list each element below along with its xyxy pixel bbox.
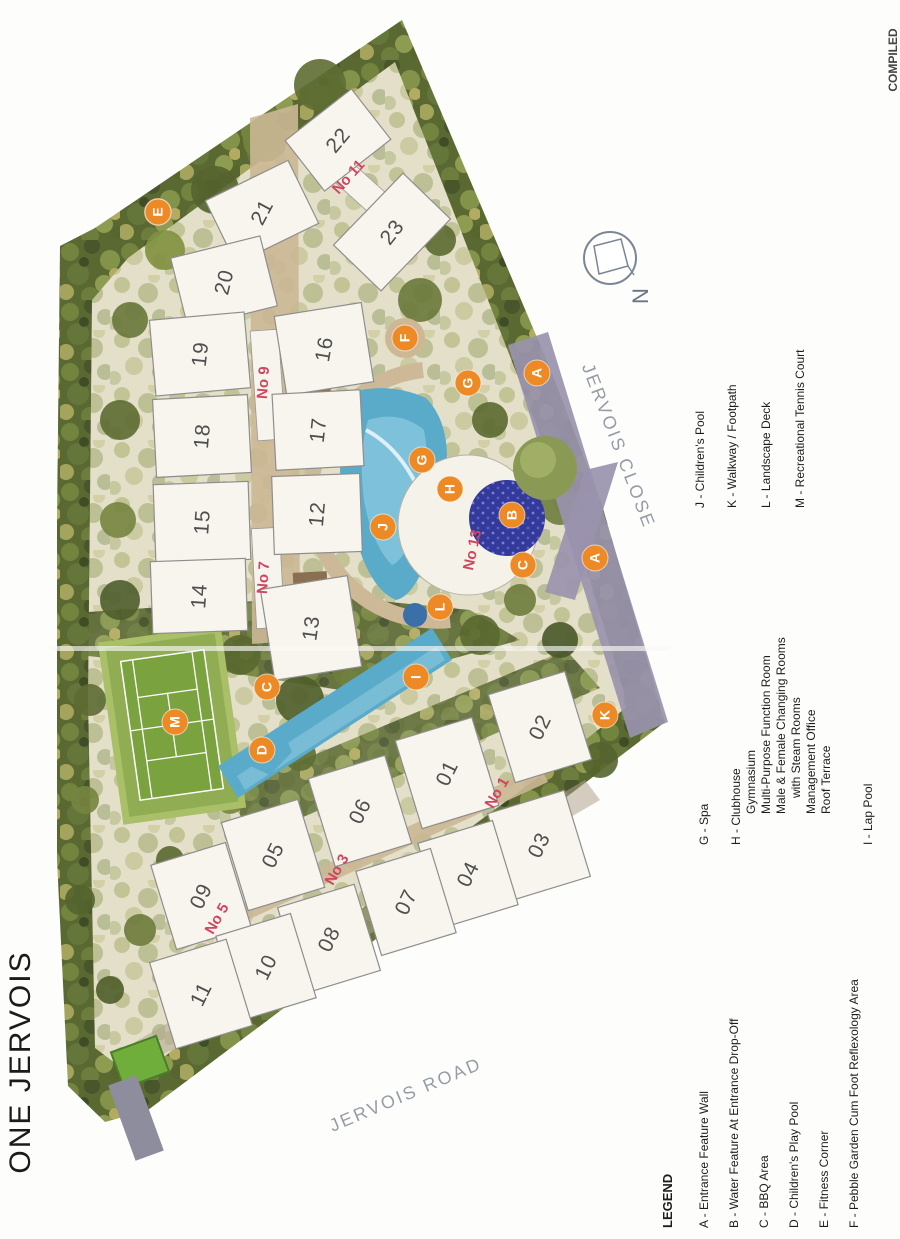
legend-line: H - Clubhouse bbox=[729, 768, 743, 845]
legend-line: F - Pebble Garden Cum Foot Reflexology A… bbox=[847, 979, 861, 1228]
marker-letter: A bbox=[587, 553, 603, 563]
marker-letter: J bbox=[375, 523, 391, 531]
marker-letter: H bbox=[442, 484, 458, 494]
marker-letter: D bbox=[254, 745, 270, 755]
marker-letter: L bbox=[432, 602, 448, 611]
marker-letter: F bbox=[397, 333, 413, 342]
marker-letter: K bbox=[597, 710, 613, 720]
legend-line: Male & Female Changing Rooms bbox=[774, 637, 788, 814]
building-block: 13 bbox=[260, 576, 361, 681]
building-number: 13 bbox=[298, 614, 324, 642]
facility-marker-b: B bbox=[499, 502, 525, 528]
facility-marker-m: M bbox=[162, 709, 188, 735]
legend-line: J - Children's Pool bbox=[693, 411, 707, 508]
building-number: 12 bbox=[305, 500, 330, 527]
facility-marker-h: H bbox=[437, 476, 463, 502]
marker-letter: C bbox=[259, 682, 275, 692]
facility-marker-i: I bbox=[403, 664, 429, 690]
building-block: 12 bbox=[272, 473, 363, 554]
facility-marker-e: E bbox=[145, 199, 171, 225]
legend-line: B - Water Feature At Entrance Drop-Off bbox=[727, 1018, 741, 1228]
compass-n-label: N bbox=[628, 288, 653, 304]
facility-marker-c: C bbox=[254, 674, 280, 700]
facility-marker-g: G bbox=[409, 447, 435, 473]
legend-line: Multi-Purpose Function Room bbox=[759, 655, 773, 814]
building-block: 14 bbox=[150, 558, 247, 633]
building-block: 19 bbox=[149, 312, 250, 396]
facility-marker-g: G bbox=[455, 370, 481, 396]
building-block: 16 bbox=[274, 303, 373, 396]
page-title: ONE JERVOIS bbox=[4, 950, 37, 1173]
facility-marker-a: A bbox=[524, 360, 550, 386]
marker-letter: I bbox=[408, 675, 424, 679]
building-number: 16 bbox=[311, 335, 338, 364]
marker-letter: G bbox=[414, 454, 430, 465]
block-label: No 9 bbox=[254, 366, 273, 400]
legend-line: M - Recreational Tennis Court bbox=[793, 349, 807, 508]
building-number: 19 bbox=[188, 340, 214, 368]
legend-line: G - Spa bbox=[697, 803, 711, 845]
building-block: 15 bbox=[153, 481, 251, 562]
facility-marker-a: A bbox=[582, 545, 608, 571]
marker-letter: M bbox=[167, 716, 183, 728]
legend-line: E - Fitness Corner bbox=[817, 1131, 831, 1228]
marker-letter: A bbox=[529, 368, 545, 378]
legend-line: L - Landscape Deck bbox=[759, 401, 773, 508]
legend-line: D - Children's Play Pool bbox=[787, 1102, 801, 1228]
building-number: 17 bbox=[306, 416, 332, 444]
building-block: 18 bbox=[153, 395, 252, 478]
legend-line: Management Office bbox=[804, 709, 818, 814]
facility-marker-f: F bbox=[392, 325, 418, 351]
building-number: 18 bbox=[190, 422, 215, 449]
facility-marker-j: J bbox=[370, 514, 396, 540]
legend-line: K - Walkway / Footpath bbox=[725, 384, 739, 508]
compiled-note: COMPILED bbox=[886, 28, 900, 92]
building-number: 14 bbox=[187, 583, 212, 610]
legend-line: Roof Terrace bbox=[819, 745, 833, 814]
site-plan: 2221201918151423161712130201060509030407… bbox=[0, 0, 900, 1239]
legend-line: C - BBQ Area bbox=[757, 1155, 771, 1228]
facility-marker-k: K bbox=[592, 702, 618, 728]
facility-marker-c: C bbox=[510, 552, 536, 578]
marker-letter: G bbox=[460, 377, 476, 388]
legend-line: I - Lap Pool bbox=[861, 784, 875, 845]
marker-letter: B bbox=[504, 510, 520, 520]
legend-line: A - Entrance Feature Wall bbox=[697, 1091, 711, 1228]
marker-letter: C bbox=[515, 560, 531, 570]
legend-line: LEGEND bbox=[660, 1174, 675, 1228]
legend-line: with Steam Rooms bbox=[789, 697, 803, 799]
marker-letter: E bbox=[150, 207, 166, 216]
scan-seam bbox=[50, 646, 670, 651]
facility-marker-d: D bbox=[249, 737, 275, 763]
building-number: 15 bbox=[190, 509, 215, 536]
block-label: No 7 bbox=[254, 561, 273, 595]
building-block: 17 bbox=[272, 390, 364, 471]
legend-line: Gymnasium bbox=[744, 750, 758, 814]
facility-marker-l: L bbox=[427, 594, 453, 620]
